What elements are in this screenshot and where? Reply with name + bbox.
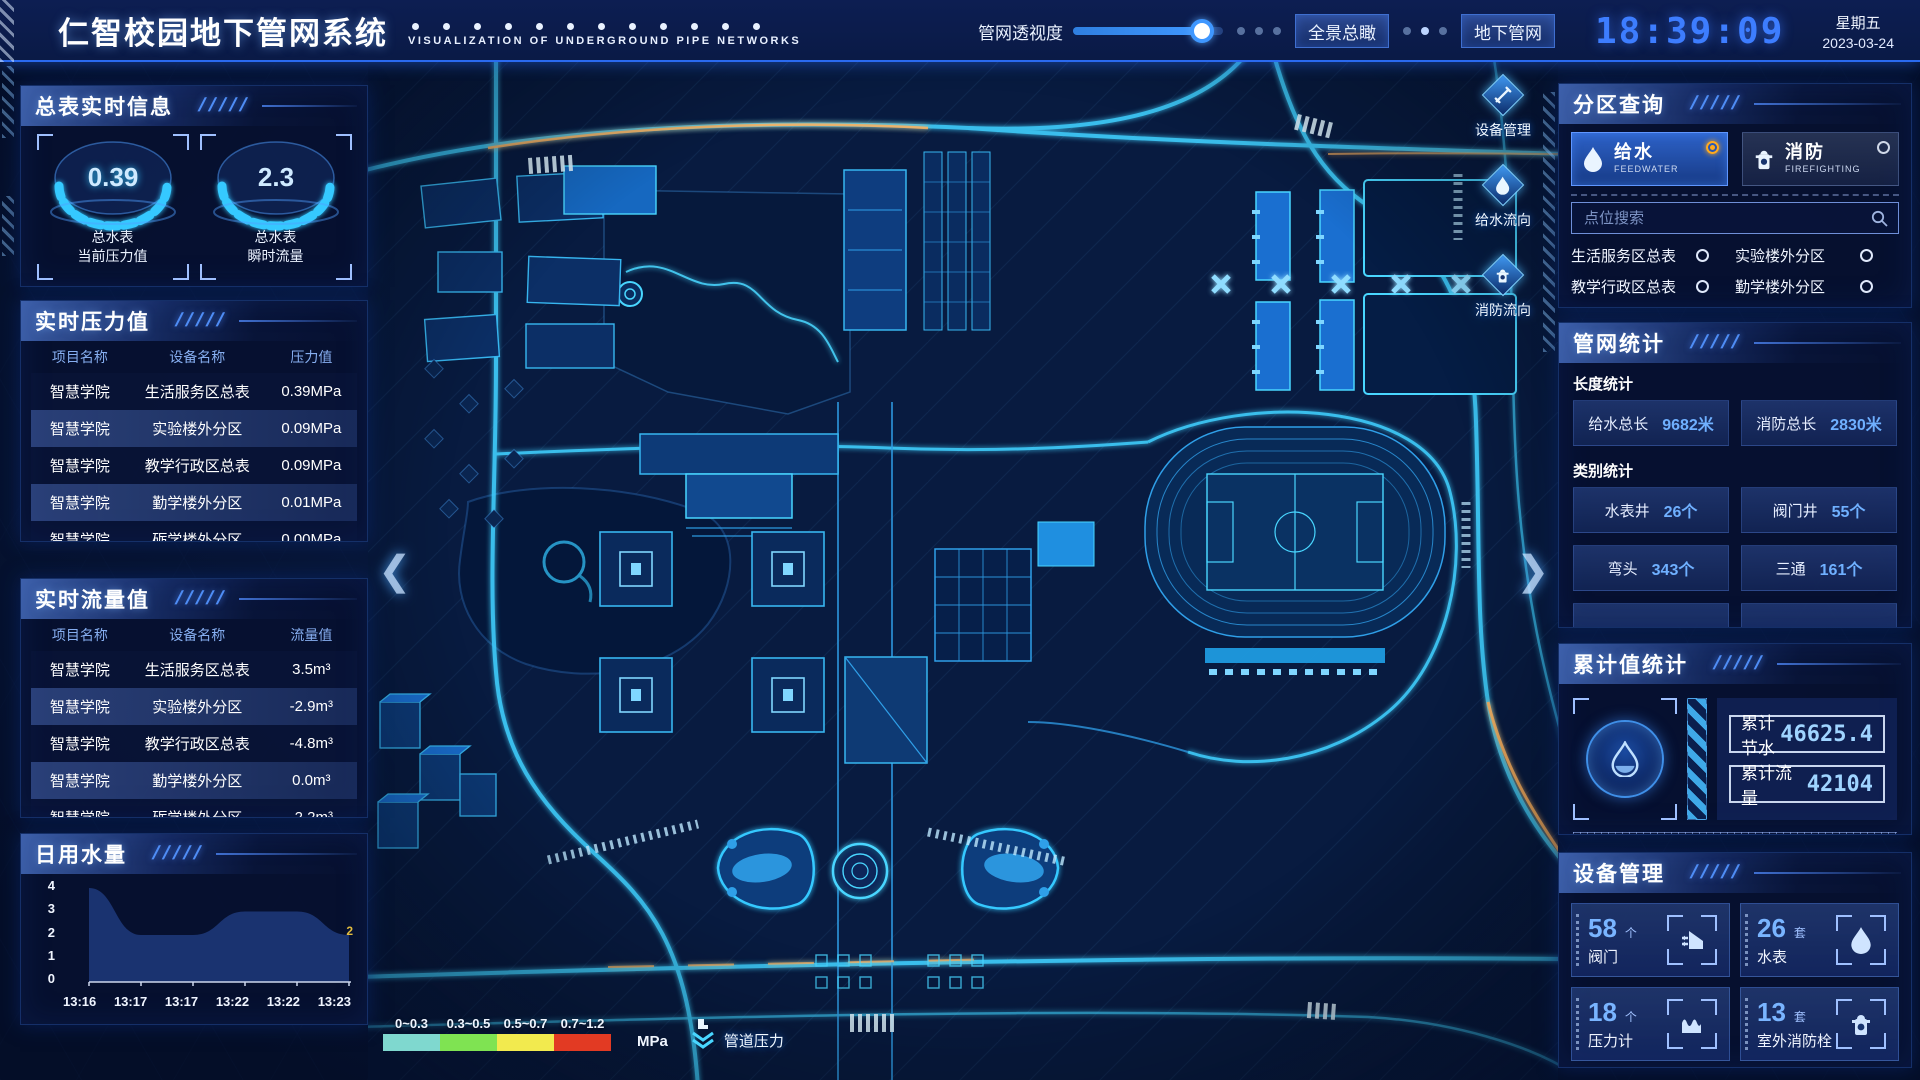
weekday: 星期五 [1836,12,1881,33]
zone-item[interactable]: 宿舍区泵房 [1735,302,1899,308]
date-block: 星期五 2023-03-24 [1822,12,1894,51]
panel-title: 管网统计 [1573,328,1665,358]
flow-table: 项目名称设备名称流量值 智慧学院生活服务区总表3.5m³ 智慧学院实验楼外分区-… [21,619,367,818]
zone-item[interactable]: 砺学楼外分区 [1571,302,1735,308]
map-toolbar: 设备管理 给水流向 消防流向 [1455,74,1551,330]
decor-slashes: ///// [1687,332,1746,354]
panel-master-meter: 总表实时信息 ///// 0.39 总水表 当前压力值 2.3 [20,85,368,287]
stat-chip: 水表井26个 [1573,487,1729,533]
length-stats-label: 长度统计 [1559,363,1911,400]
pipe-opacity-slider[interactable] [1073,27,1223,35]
toolbar-device-management[interactable]: 设备管理 [1475,74,1531,150]
zone-list: 生活服务区总表 实验楼外分区 教学行政区总表 勤学楼外分区 砺学楼外分区 宿舍区… [1559,240,1911,308]
daily-usage-chart: 432 10 13:1613:1713:17 13:2213:2213:23 2 [35,876,355,1022]
table-row: 智慧学院勤学楼外分区0.01MPa [31,484,357,521]
water-drop-icon [1610,741,1640,777]
decor-slashes: ///// [1687,862,1746,884]
dashboard: 仁智校园地下管网系统 VISUALIZATION OF UNDERGROUND … [0,0,1920,1080]
zone-item[interactable]: 生活服务区总表 [1571,240,1735,271]
pressure-legend: 0~0.3 0.3~0.5 0.5~0.7 0.7~1.2 MPa 管道压力 [383,1016,784,1051]
cumulative-values: 累计节水46625.4 累计流量42104 [1717,698,1897,820]
decor-hatch [2,196,14,256]
legend-swatch [554,1034,611,1051]
app-subtitle-block: VISUALIZATION OF UNDERGROUND PIPE NETWOR… [408,13,801,47]
gauge-label: 总水表 [78,228,148,247]
device-card-pressure-gauges[interactable]: 18个 压力计 [1571,987,1730,1061]
decor-slashes: ///// [1687,93,1746,115]
gauge-dial: 0.39 [43,134,183,232]
water-emblem [1573,698,1677,820]
zone-item[interactable]: 教学行政区总表 [1571,271,1735,302]
water-drop-icon [1482,164,1524,206]
cumulative-flow: 累计流量42104 [1729,765,1885,803]
tab-label: 消防 [1785,143,1861,163]
app-title: 仁智校园地下管网系统 [58,8,388,53]
decor-slashes: ///// [172,588,231,610]
decor-dots [1403,27,1447,35]
category-stats-label: 类别统计 [1559,450,1911,487]
slider-fill [1073,27,1202,35]
stat-chip [1741,603,1897,628]
gauge-label: 当前压力值 [78,247,148,266]
svg-text:2.3: 2.3 [257,162,293,192]
decor-slashes: ///// [1710,653,1769,675]
panel-title: 实时流量值 [35,584,150,614]
panel-title: 日用水量 [35,839,127,869]
gauge-label: 总水表 [248,228,304,247]
table-row: 智慧学院教学行政区总表-4.8m³ [31,725,357,762]
table-header: 项目名称设备名称流量值 [31,619,357,651]
hydrant-icon [1753,146,1775,172]
panel-cumulative: 累计值统计 ///// 累计节水46625.4 累计流量42104 [1558,643,1912,835]
area-path [89,888,349,982]
legend-swatch [383,1034,440,1051]
decor-ruler [1573,832,1897,835]
pressure-table: 项目名称设备名称压力值 智慧学院生活服务区总表0.39MPa 智慧学院实验楼外分… [21,341,367,542]
radio-selected[interactable] [1706,141,1719,154]
cumulative-saved: 累计节水46625.4 [1729,715,1885,753]
radio-unselected[interactable] [1696,280,1709,293]
wrench-icon [1482,74,1524,116]
toolbar-label: 给水流向 [1475,210,1531,230]
decor-slashes: ///// [149,843,208,865]
map-nav-left-arrow[interactable]: ❮ [378,548,412,594]
table-row: 智慧学院实验楼外分区-2.9m³ [31,688,357,725]
pipe-pressure-icon [690,1017,716,1051]
clock: 18:39:09 [1595,11,1784,52]
gauge-label: 瞬时流量 [248,247,304,266]
table-row: 智慧学院教学行政区总表0.09MPa [31,447,357,484]
svg-text:0.39: 0.39 [87,162,138,192]
panel-title: 总表实时信息 [35,91,173,121]
decor-hazard-stripe [1687,698,1707,820]
table-row: 智慧学院勤学楼外分区0.0m³ [31,762,357,799]
table-row: 智慧学院砺学楼外分区0.00MPa [31,521,357,542]
gauge-pressure: 0.39 总水表 当前压力值 [37,134,189,280]
toolbar-feedwater-flow[interactable]: 给水流向 [1475,164,1531,240]
panel-title: 分区查询 [1573,89,1665,119]
device-card-hydrants[interactable]: 13套 室外消防栓 [1740,987,1899,1061]
legend-segment: 0~0.3 [383,1016,440,1051]
zone-item[interactable]: 实验楼外分区 [1735,240,1899,271]
panel-pipe-stats: 管网统计 ///// 长度统计 给水总长9682米 消防总长2830米 类别统计… [1558,322,1912,628]
panel-zone-query: 分区查询 ///// 给水 FEEDWATER 消防 FIREFIGHTING [1558,83,1912,308]
zone-item[interactable]: 勤学楼外分区 [1735,271,1899,302]
chart-y-axis: 432 10 [35,878,55,986]
decor-hatch [0,0,14,62]
legend-swatch [497,1034,554,1051]
panel-realtime-pressure: 实时压力值 ///// 项目名称设备名称压力值 智慧学院生活服务区总表0.39M… [20,300,368,542]
map-nav-right-arrow[interactable]: ❯ [1516,548,1550,594]
legend-segment: 0.3~0.5 [440,1016,497,1051]
point-search-box[interactable] [1571,202,1899,234]
table-row: 智慧学院生活服务区总表3.5m³ [31,651,357,688]
legend-segment: 0.5~0.7 [497,1016,554,1051]
tab-feedwater[interactable]: 给水 FEEDWATER [1571,132,1728,186]
radio-unselected[interactable] [1877,141,1890,154]
table-row: 智慧学院生活服务区总表0.39MPa [31,373,357,410]
stat-chip [1573,603,1729,628]
toolbar-label: 消防流向 [1475,300,1531,320]
device-card-water-meters[interactable]: 26套 水表 [1740,903,1899,977]
gauge-flow: 2.3 总水表 瞬时流量 [200,134,352,280]
tab-label: 给水 [1614,143,1679,163]
radio-unselected[interactable] [1860,249,1873,262]
search-icon [1871,210,1888,227]
legend-swatch [440,1034,497,1051]
table-row: 智慧学院砺学楼外分区-2.2m³ [31,799,357,818]
chart-end-value: 2 [346,924,353,938]
legend-segment: 0.7~1.2 [554,1016,611,1051]
divider [1571,194,1899,196]
decor-dots [1237,27,1281,35]
stat-chip: 给水总长9682米 [1573,400,1729,446]
water-drop-icon [1582,146,1604,172]
stat-chip: 消防总长2830米 [1741,400,1897,446]
panel-title: 设备管理 [1573,858,1665,888]
chart-x-axis: 13:1613:1713:17 13:2213:2213:23 [63,994,351,1009]
panel-title: 实时压力值 [35,306,150,336]
app-subtitle: VISUALIZATION OF UNDERGROUND PIPE NETWOR… [408,35,801,47]
decor-slashes: ///// [195,95,254,117]
slider-knob[interactable] [1190,19,1214,43]
table-row: 智慧学院实验楼外分区0.09MPa [31,410,357,447]
date: 2023-03-24 [1822,35,1894,51]
decor-slashes: ///// [172,310,231,332]
underground-pipes-button[interactable]: 地下管网 [1461,14,1555,48]
panel-device-management: 设备管理 ///// 58个 阀门 26套 水表 [1558,852,1912,1068]
panel-realtime-flow: 实时流量值 ///// 项目名称设备名称流量值 智慧学院生活服务区总表3.5m³… [20,578,368,818]
radio-unselected[interactable] [1860,280,1873,293]
toolbar-fire-flow[interactable]: 消防流向 [1475,254,1531,330]
stat-chip: 阀门井55个 [1741,487,1897,533]
stat-chip: 三通161个 [1741,545,1897,591]
pipe-opacity-control: 管网透视度 [978,19,1223,44]
table-header: 项目名称设备名称压力值 [31,341,357,373]
device-card-valves[interactable]: 58个 阀门 [1571,903,1730,977]
gauge-dial: 2.3 [206,134,346,232]
stat-chip: 弯头343个 [1573,545,1729,591]
tab-sublabel: FIREFIGHTING [1785,165,1861,175]
pipe-opacity-label: 管网透视度 [978,19,1063,44]
panel-title: 累计值统计 [1573,649,1688,679]
hydrant-icon [1482,254,1524,296]
panel-daily-usage: 日用水量 ///// 432 10 13:1613:1713:17 13:221… [20,833,368,1025]
app-header: 仁智校园地下管网系统 VISUALIZATION OF UNDERGROUND … [0,0,1920,62]
legend-unit: MPa [637,1033,668,1050]
decor-hatch [2,66,14,138]
toolbar-label: 设备管理 [1475,120,1531,140]
tab-firefighting[interactable]: 消防 FIREFIGHTING [1742,132,1899,186]
pipe-pressure-button[interactable]: 管道压力 [690,1017,784,1051]
panorama-button[interactable]: 全景总瞰 [1295,14,1389,48]
radio-unselected[interactable] [1696,249,1709,262]
search-input[interactable] [1582,209,1871,228]
decor-dots [408,23,801,30]
campus-map[interactable] [368,62,1558,1080]
tab-sublabel: FEEDWATER [1614,165,1679,175]
